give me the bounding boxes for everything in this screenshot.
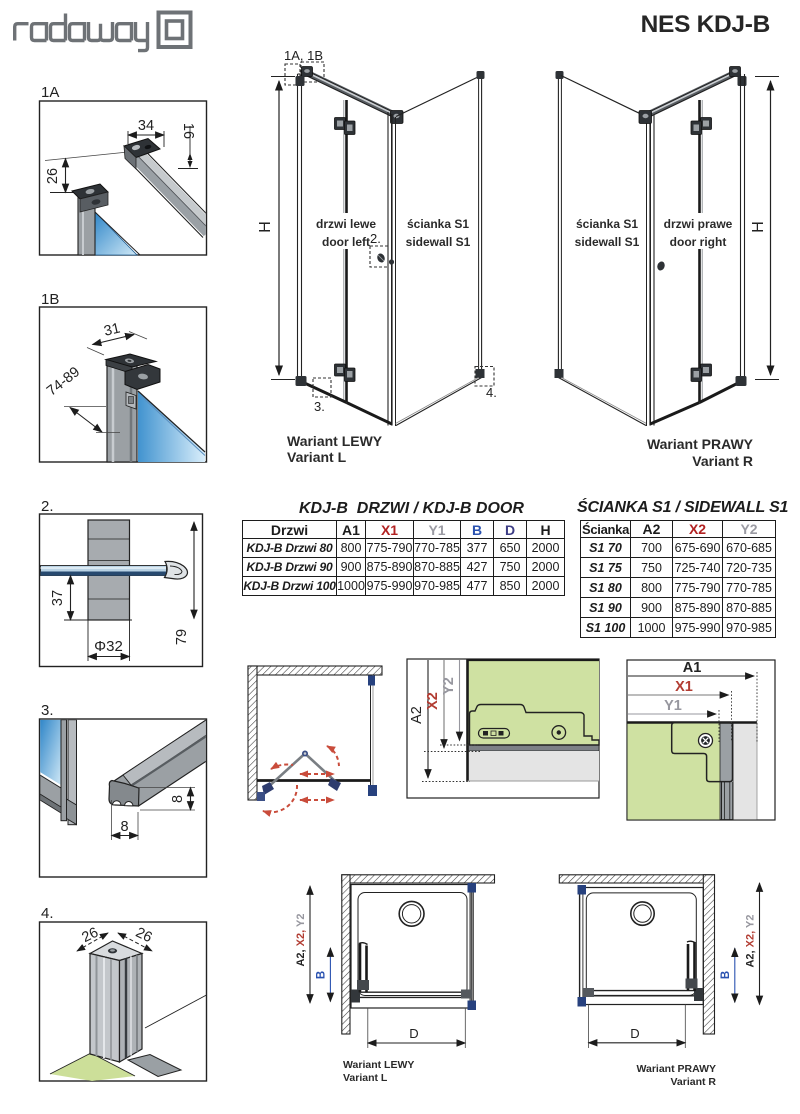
svg-text:A2: A2	[409, 706, 425, 724]
svg-text:Y1: Y1	[664, 698, 682, 714]
svg-text:4.: 4.	[41, 905, 54, 922]
svg-text:1B: 1B	[41, 291, 59, 308]
svg-text:26: 26	[79, 925, 101, 946]
svg-text:8: 8	[120, 819, 128, 835]
svg-text:H: H	[750, 221, 767, 233]
svg-text:74-89: 74-89	[44, 364, 83, 399]
svg-text:door right: door right	[670, 235, 727, 249]
svg-text:26: 26	[45, 168, 61, 184]
svg-text:ścianka S1: ścianka S1	[407, 217, 469, 231]
svg-text:Φ32: Φ32	[94, 638, 123, 655]
svg-text:3.: 3.	[314, 399, 325, 414]
svg-text:16: 16	[180, 123, 196, 139]
svg-text:B: B	[720, 971, 732, 979]
svg-text:3.: 3.	[41, 702, 54, 719]
svg-text:8: 8	[170, 795, 186, 803]
svg-text:2.: 2.	[370, 231, 381, 246]
svg-text:2.: 2.	[41, 498, 54, 515]
svg-text:D: D	[409, 1026, 418, 1041]
svg-text:31: 31	[102, 320, 121, 339]
svg-text:door left: door left	[322, 235, 370, 249]
svg-text:Y2: Y2	[441, 677, 457, 695]
svg-text:B: B	[316, 971, 328, 979]
svg-text:Wariant PRAWY: Wariant PRAWY	[647, 436, 754, 452]
svg-text:Wariant LEWY: Wariant LEWY	[287, 433, 383, 449]
svg-text:A2, X2, Y2: A2, X2, Y2	[745, 914, 757, 967]
svg-text:37: 37	[50, 590, 66, 606]
svg-text:H: H	[257, 221, 274, 233]
svg-text:Wariant PRAWY: Wariant PRAWY	[636, 1063, 716, 1075]
svg-text:drzwi lewe: drzwi lewe	[316, 217, 376, 231]
svg-text:D: D	[630, 1026, 639, 1041]
svg-text:4.: 4.	[486, 385, 497, 400]
svg-text:X2: X2	[425, 692, 441, 710]
svg-text:sidewall S1: sidewall S1	[406, 235, 471, 249]
svg-text:A2, X2, Y2: A2, X2, Y2	[295, 913, 307, 966]
svg-text:34: 34	[138, 118, 154, 134]
svg-text:Variant R: Variant R	[670, 1076, 716, 1088]
svg-text:1A: 1A	[41, 84, 59, 101]
svg-text:Variant L: Variant L	[343, 1072, 388, 1084]
svg-text:A1: A1	[683, 660, 702, 676]
svg-text:ścianka S1: ścianka S1	[576, 217, 638, 231]
svg-text:Variant R: Variant R	[692, 453, 753, 469]
svg-text:79: 79	[174, 629, 190, 645]
svg-text:Wariant LEWY: Wariant LEWY	[343, 1059, 414, 1071]
svg-text:Variant L: Variant L	[287, 449, 347, 465]
svg-text:X1: X1	[675, 679, 693, 695]
svg-text:drzwi prawe: drzwi prawe	[664, 217, 733, 231]
svg-text:sidewall S1: sidewall S1	[575, 235, 640, 249]
svg-text:1A, 1B: 1A, 1B	[284, 48, 323, 63]
